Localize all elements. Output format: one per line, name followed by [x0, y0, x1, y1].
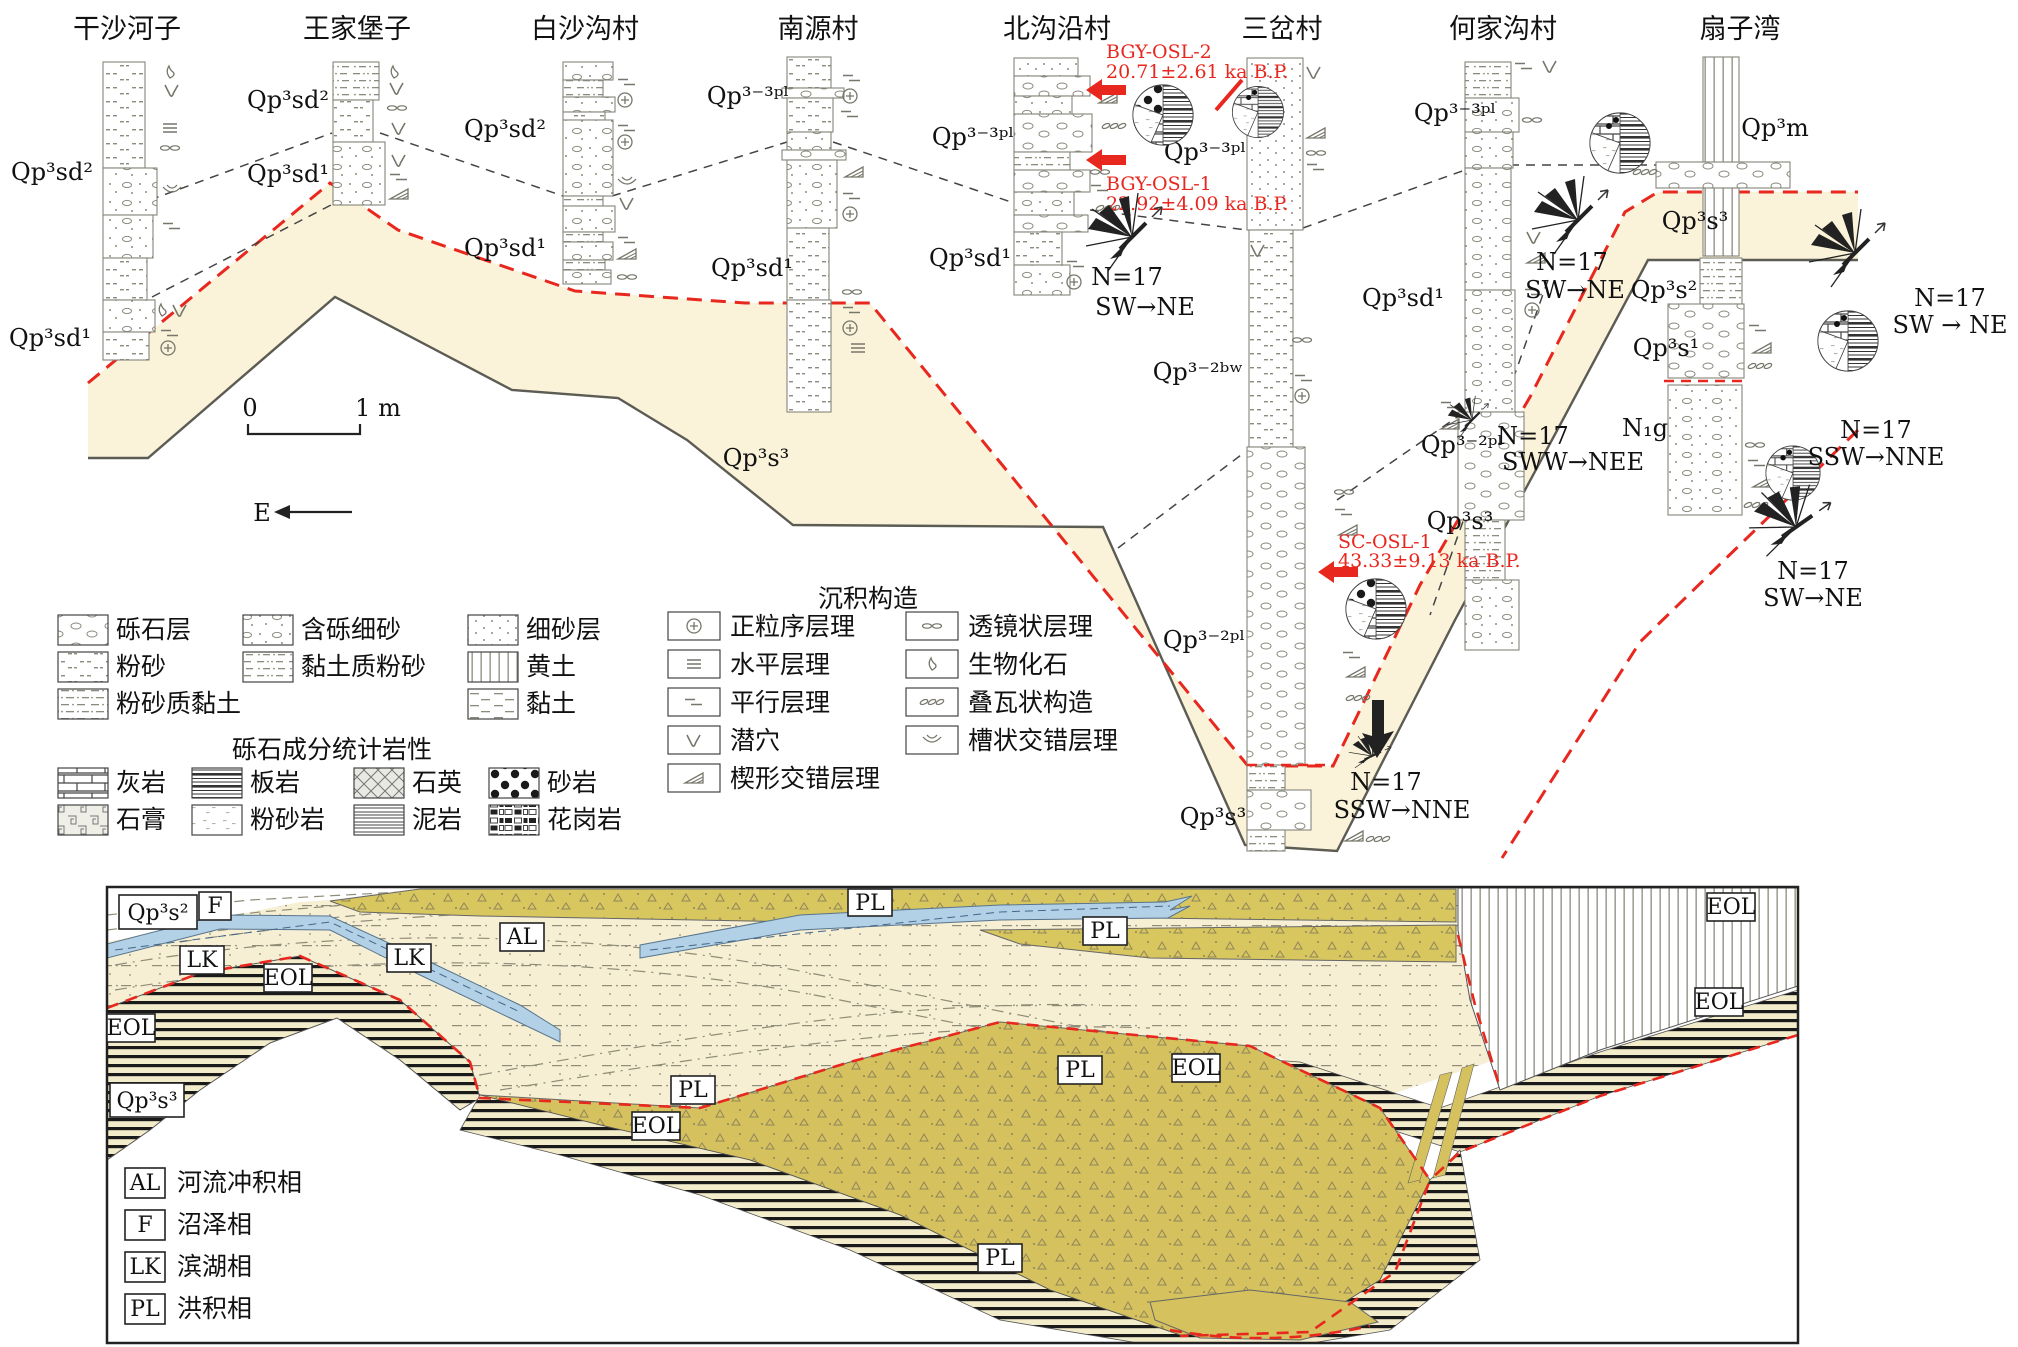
- figure-canvas: 干沙河子 王家堡子 白沙沟村 南源村 北沟沿村 三岔村 何家沟村 扇子湾 Qp³…: [0, 0, 2018, 1347]
- site-title-baishagou: 白沙沟村: [531, 14, 639, 45]
- swatch-loess: [468, 652, 518, 682]
- unit-label: Qp³⁻²ᵖˡ: [1163, 626, 1245, 654]
- facies-code: AL: [129, 1171, 161, 1196]
- sed-label: 生物化石: [968, 650, 1068, 679]
- gravel-label: 泥岩: [412, 805, 462, 834]
- facies-code: PL: [130, 1297, 160, 1322]
- section-label: EOL: [1172, 1056, 1221, 1081]
- gravel-label: 石英: [412, 768, 462, 797]
- section-label: PL: [1090, 919, 1120, 944]
- flow-direction: SW→NE: [1763, 584, 1863, 612]
- scale-zero: 0: [242, 394, 257, 422]
- section-label: F: [207, 894, 222, 919]
- unit-label: Qp³sd¹: [9, 324, 91, 352]
- facies-name: 滨湖相: [177, 1252, 252, 1281]
- site-title-beigouyan: 北沟沿村: [1003, 14, 1111, 45]
- osl-sample-name: BGY-OSL-2: [1106, 41, 1212, 63]
- osl-sample-age: 22.92±4.09 ka B.P.: [1106, 193, 1289, 215]
- swatch-slate: [192, 768, 242, 798]
- swatch-imbricate: [906, 688, 958, 716]
- site-column-wangjiabuzi: [333, 62, 408, 205]
- section-label: EOL: [107, 1016, 156, 1041]
- facies-code: LK: [129, 1255, 161, 1280]
- section-label: EOL: [1707, 895, 1756, 920]
- swatch-limestone: [58, 768, 108, 798]
- facies-name: 河流冲积相: [177, 1168, 302, 1197]
- section-label: PL: [678, 1078, 708, 1103]
- sed-label: 潜穴: [730, 726, 780, 755]
- facies-code: F: [137, 1213, 152, 1238]
- site-title-ganshahezi: 干沙河子: [73, 14, 181, 45]
- sample-count: N=17: [1777, 557, 1849, 585]
- gravel-label: 砂岩: [547, 768, 597, 797]
- flow-direction: SW→NE: [1095, 293, 1195, 321]
- swatch-trough-cross-bedding: [906, 726, 958, 754]
- section-label: EOL: [632, 1114, 681, 1139]
- lith-label: 黏土质粉砂: [301, 652, 426, 681]
- swatch-parallel-bedding: [668, 688, 720, 716]
- section-label: PL: [985, 1246, 1015, 1271]
- unit-label: Qp³⁻²ᵖˡ: [1421, 431, 1503, 459]
- unit-label: Qp³⁻²ᵇʷ: [1153, 358, 1244, 386]
- sample-count: N=17: [1914, 284, 1986, 312]
- unit-label: Qp³sd¹: [711, 254, 793, 282]
- lith-label: 细砂层: [526, 615, 601, 644]
- section-label: EOL: [1695, 990, 1744, 1015]
- sed-label: 槽状交错层理: [968, 726, 1118, 755]
- section-label: EOL: [264, 966, 313, 991]
- swatch-clay: [468, 689, 518, 719]
- unit-label: Qp³s³: [1180, 803, 1247, 831]
- swatch-silty-clay: [58, 689, 108, 719]
- flow-direction: SSW→NNE: [1334, 796, 1471, 824]
- swatch-quartz: [354, 768, 404, 798]
- flow-direction: SWW→NEE: [1502, 448, 1644, 476]
- swatch-gravelly-fine-sand: [243, 615, 293, 645]
- sample-count: N=17: [1840, 416, 1912, 444]
- unit-label: Qp³sd²: [11, 158, 93, 186]
- facies-legend: AL F LK PL 河流冲积相 沼泽相 滨湖相 洪积相: [125, 1168, 302, 1324]
- gravel-label: 花岗岩: [547, 805, 622, 834]
- scale-bar-line: [248, 424, 360, 434]
- sample-count: N=17: [1350, 768, 1422, 796]
- legend-sed-structures: 沉积构造 正粒序层理 水平层理 平行层理 潜穴 楔形交错层理 透镜状层理 生物化…: [668, 584, 1118, 793]
- unit-label: Qp³sd¹: [464, 234, 546, 262]
- sed-label: 水平层理: [730, 650, 830, 679]
- section-label: Qp³s²: [127, 901, 188, 926]
- unit-label: Qp³s²: [1631, 276, 1698, 304]
- facies-name: 洪积相: [177, 1294, 252, 1323]
- flow-direction: SW → NE: [1893, 311, 2008, 339]
- osl-sample-name: BGY-OSL-1: [1106, 173, 1212, 195]
- sed-label: 楔形交错层理: [730, 764, 880, 793]
- lith-label: 砾石层: [116, 615, 191, 644]
- swatch-fossil: [906, 650, 958, 678]
- unit-label: Qp³sd²: [247, 86, 329, 114]
- swatch-mudstone: [354, 805, 404, 835]
- unit-label: Qp³sd¹: [247, 160, 329, 188]
- unit-label: Qp³sd¹: [1362, 284, 1444, 312]
- gravel-pie-shanziwan-1: [1590, 113, 1650, 173]
- swatch-granite: [489, 805, 539, 835]
- scale-bar: 0 1 m: [242, 394, 401, 434]
- facies-name: 沼泽相: [177, 1210, 252, 1239]
- section-label: AL: [506, 925, 538, 950]
- swatch-burrow: [668, 726, 720, 754]
- section-label: PL: [855, 891, 885, 916]
- site-title-wangjiabuzi: 王家堡子: [303, 14, 411, 45]
- gravel-pie-hejiagou: [1232, 86, 1283, 137]
- sed-label: 叠瓦状构造: [968, 688, 1093, 717]
- gravel-pie-sanchacun: [1346, 579, 1406, 639]
- gravel-title: 砾石成分统计岩性: [232, 735, 432, 764]
- sample-count: N=17: [1497, 422, 1569, 450]
- section-label: LK: [186, 948, 218, 973]
- osl-sample-age: 43.33±9.13 ka B.P.: [1338, 550, 1521, 572]
- unit-label: Qp³sd¹: [929, 244, 1011, 272]
- swatch-sandstone: [489, 768, 539, 798]
- sed-label: 平行层理: [730, 688, 830, 717]
- scale-one-meter: 1 m: [355, 394, 401, 422]
- swatch-siltstone: [192, 805, 242, 835]
- swatch-gravel: [58, 615, 108, 645]
- unit-label: Qp³s³: [1662, 207, 1729, 235]
- unit-label: N₁g: [1622, 414, 1668, 442]
- lith-label: 粉砂质黏土: [116, 689, 241, 718]
- gravel-label: 灰岩: [116, 768, 166, 797]
- swatch-silt: [58, 652, 108, 682]
- paleocurrent-annotations: N=17 SW→NE N=17 SW→NE N=17 SWW→NEE N=17 …: [1086, 176, 2008, 824]
- gravel-pie-shanziwan-2: [1818, 311, 1878, 371]
- gravel-pie-beigouyan: [1133, 85, 1193, 145]
- gravel-label: 石膏: [116, 805, 166, 834]
- facies-cross-section: Qp³s² F LK EOL LK AL PL PL PL PL EOL EOL…: [107, 887, 1798, 1345]
- unit-label: Qp³⁻³ᵖˡ: [932, 123, 1014, 151]
- osl-sample-age: 20.71±2.61 ka B.P.: [1106, 61, 1289, 83]
- section-label: LK: [393, 946, 425, 971]
- gravel-label: 粉砂岩: [250, 805, 325, 834]
- gravel-label: 板岩: [250, 768, 300, 797]
- flow-direction: SSW→NNE: [1808, 443, 1945, 471]
- lith-label: 黏土: [526, 689, 576, 718]
- direction-arrow: E: [253, 499, 352, 527]
- east-label: E: [253, 499, 271, 527]
- lith-label: 黄土: [526, 652, 576, 681]
- legend-gravel-composition: 砾石成分统计岩性 灰岩 板岩 石英 砂岩 石膏 粉砂岩 泥岩 花岗岩: [58, 735, 622, 835]
- site-column-baishagou: [563, 62, 637, 284]
- unit-label: Qp³s³: [1427, 507, 1494, 535]
- swatch-fine-sand: [468, 615, 518, 645]
- unit-label: Qp³s³: [723, 444, 790, 472]
- sed-label: 正粒序层理: [730, 612, 855, 641]
- swatch-gypsum: [58, 805, 108, 835]
- geological-figure: 干沙河子 王家堡子 白沙沟村 南源村 北沟沿村 三岔村 何家沟村 扇子湾 Qp³…: [0, 0, 2018, 1347]
- legend-lithology: 砾石层 含砾细砂 细砂层 粉砂 黏土质粉砂 黄土 粉砂质黏土 黏土: [58, 615, 601, 719]
- site-title-hejiagou: 何家沟村: [1449, 14, 1557, 45]
- east-arrow-head: [274, 505, 290, 519]
- sed-label: 透镜状层理: [968, 612, 1093, 641]
- site-title-nanyuan: 南源村: [778, 14, 859, 45]
- site-titles: 干沙河子 王家堡子 白沙沟村 南源村 北沟沿村 三岔村 何家沟村 扇子湾: [73, 14, 1781, 45]
- section-label: Qp³s³: [116, 1089, 177, 1114]
- unit-label: Qp³⁻³ᵖˡ: [707, 82, 789, 110]
- swatch-clayey-silt: [243, 652, 293, 682]
- sample-count: N=17: [1536, 248, 1608, 276]
- unit-label: Qp³s¹: [1633, 334, 1700, 362]
- sample-count: N=17: [1091, 263, 1163, 291]
- unit-label: Qp³sd²: [464, 115, 546, 143]
- rose-diagram: [1532, 176, 1608, 254]
- unit-label: Qp³⁻³ᵖˡ: [1414, 99, 1496, 127]
- site-title-shanziwan: 扇子湾: [1700, 14, 1781, 45]
- lith-label: 粉砂: [116, 652, 166, 681]
- unit-label: Qp³m: [1741, 114, 1809, 142]
- sed-structures-title: 沉积构造: [818, 584, 918, 613]
- section-label: PL: [1065, 1058, 1095, 1083]
- lith-label: 含砾细砂: [301, 615, 401, 644]
- site-title-sanchacun: 三岔村: [1242, 14, 1323, 45]
- flow-direction: SW→NE: [1525, 276, 1625, 304]
